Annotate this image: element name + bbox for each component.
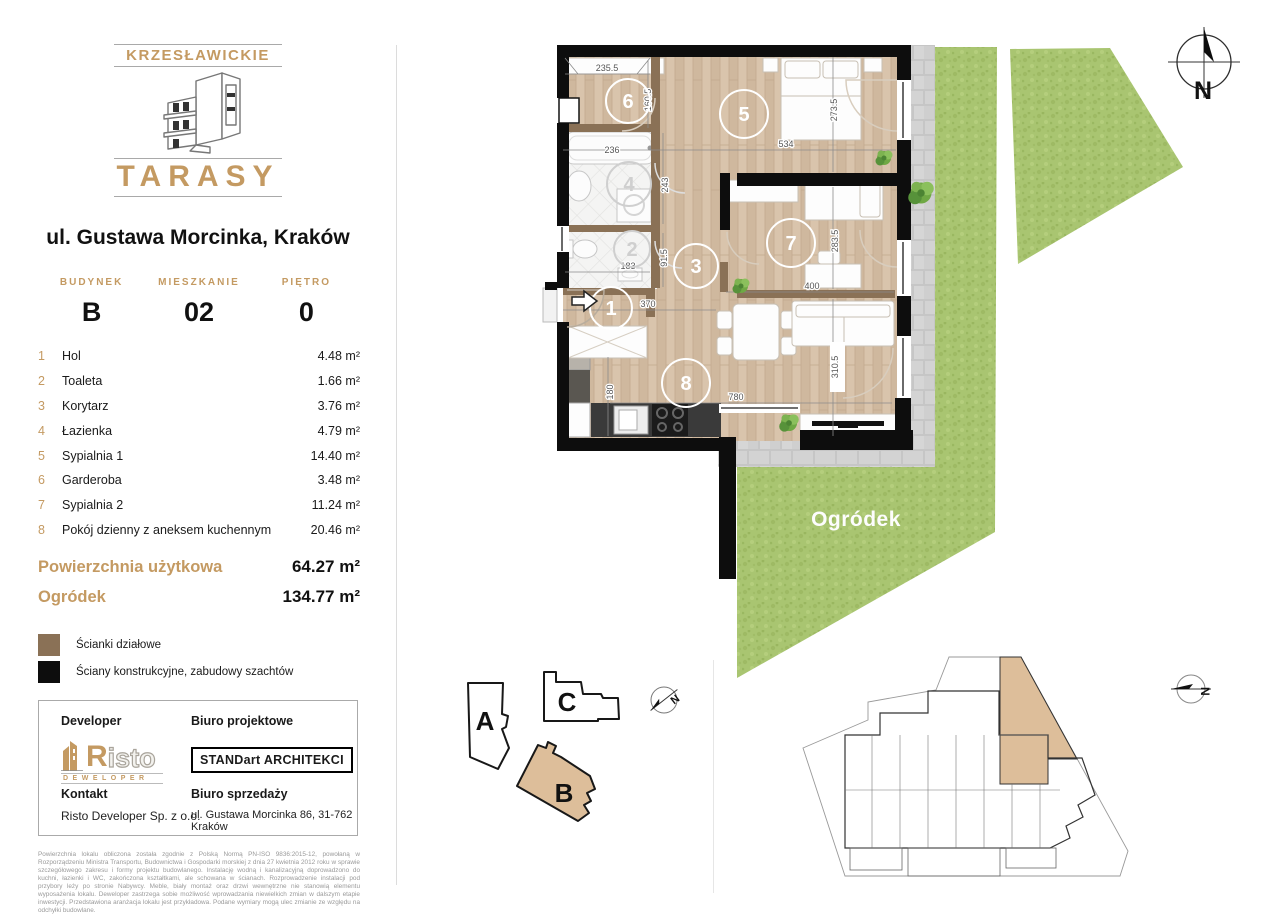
room-marker-2: 2 <box>626 239 637 261</box>
room-area: 11.24 m² <box>312 498 360 512</box>
flat-card-page: { "logo": { "top": "KRZESŁAWICKIE", "bot… <box>0 0 1280 906</box>
dim-370: 370 <box>640 299 655 309</box>
room-area: 3.76 m² <box>318 399 360 413</box>
dim-310-5: 310.5 <box>830 356 840 379</box>
street-address: ul. Gustawa Morcinka, Kraków <box>0 226 396 250</box>
room-number: 1 <box>38 349 56 363</box>
room-name: Korytarz <box>56 399 318 413</box>
usable-area-label: Powierzchnia użytkowa <box>38 558 292 577</box>
room-row: 2 Toaleta 1.66 m² <box>38 369 360 394</box>
risto-logo-isto: isto <box>108 745 156 771</box>
room-row: 3 Korytarz 3.76 m² <box>38 394 360 419</box>
room-row: 8 Pokój dzienny z aneksem kuchennym 20.4… <box>38 518 360 543</box>
partition-wall-label: Ścianki działowe <box>76 639 161 651</box>
room-area: 4.48 m² <box>318 349 360 363</box>
logo-rule-2 <box>114 66 282 67</box>
pietro-value: 0 <box>253 297 360 328</box>
pietro-label: PIĘTRO <box>253 277 360 288</box>
developer-label: Developer <box>61 714 121 728</box>
legal-disclaimer: Powierzchnia lokalu obliczona została zg… <box>38 851 360 915</box>
sales-office-value: ul. Gustawa Morcinka 86, 31-762 Kraków <box>191 809 357 833</box>
risto-building-icon <box>61 739 83 771</box>
room-row: 4 Łazienka 4.79 m² <box>38 418 360 443</box>
dim-400: 400 <box>804 281 819 291</box>
risto-logo-r: R <box>86 743 108 771</box>
dim-283-5: 283.5 <box>830 230 840 253</box>
room-name: Garderoba <box>56 473 318 487</box>
room-marker-5: 5 <box>738 104 749 126</box>
budynek-value: B <box>38 297 145 328</box>
room-number: 7 <box>38 498 56 512</box>
compass-site: N <box>648 686 685 720</box>
legend-structural-row: Ściany konstrukcyjne, zabudowy szachtów <box>38 661 378 683</box>
contact-label: Kontakt <box>61 787 108 801</box>
compass-overview: N <box>1171 675 1212 703</box>
room-name: Hol <box>56 349 318 363</box>
room-marker-6: 6 <box>622 91 633 113</box>
left-panel: KRZESŁAWICKIE TARASY u <box>0 0 400 906</box>
risto-logo: R isto DEWELOPER <box>61 737 163 784</box>
room-marker-8: 8 <box>680 373 691 395</box>
room-area: 20.46 m² <box>311 523 360 537</box>
brand-logo: KRZESŁAWICKIE TARASY <box>114 44 282 197</box>
compass-north-label: N <box>1194 77 1212 105</box>
dim-780: 780 <box>728 392 743 402</box>
dim-243: 243 <box>660 177 670 192</box>
dim-236: 236 <box>604 145 619 155</box>
dim-235-5: 235.5 <box>596 63 619 73</box>
room-area: 4.79 m² <box>318 424 360 438</box>
wall-legend: Ścianki działowe Ściany konstrukcyjne, z… <box>38 634 378 688</box>
compass-overview-north: N <box>1198 687 1212 696</box>
structural-wall-swatch <box>38 661 60 683</box>
floor-plan-canvas: 235.5 160.5 236 243 534 273.5 183 91.5 2… <box>400 0 1280 906</box>
room-area: 14.40 m² <box>311 449 360 463</box>
overview-building <box>845 691 1095 848</box>
room-number: 6 <box>38 473 56 487</box>
compass-site-north: N <box>669 693 683 707</box>
logo-building-icon <box>150 69 246 155</box>
dim-91-5: 91.5 <box>659 249 669 267</box>
room-list: 1 Hol 4.48 m² 2 Toaleta 1.66 m² 3 Koryta… <box>38 344 360 542</box>
unit-info-columns: BUDYNEK B MIESZKANIE 02 PIĘTRO 0 <box>38 277 360 328</box>
sales-office-label: Biuro sprzedaży <box>191 787 288 801</box>
logo-title-top: KRZESŁAWICKIE <box>114 47 282 64</box>
info-col-mieszkanie: MIESZKANIE 02 <box>145 277 252 328</box>
overview-garage <box>850 848 902 870</box>
overview-garage <box>1006 848 1056 868</box>
compass-needle <box>1204 28 1214 62</box>
room-number: 4 <box>38 424 56 438</box>
design-office-logo: STANDart ARCHITEKCI <box>191 747 353 773</box>
logo-rule-top <box>114 44 282 45</box>
compass-main: N <box>1168 27 1240 105</box>
room-marker-7: 7 <box>785 233 796 255</box>
side-green-parcel <box>1010 48 1183 264</box>
room-name: Toaleta <box>56 374 318 388</box>
garden-area-value: 134.77 m² <box>283 587 361 607</box>
site-plan: A C B N <box>468 672 685 821</box>
room-row: 6 Garderoba 3.48 m² <box>38 468 360 493</box>
info-col-pietro: PIĘTRO 0 <box>253 277 360 328</box>
partition-wall-swatch <box>38 634 60 656</box>
building-c-label: C <box>558 687 577 717</box>
dim-534: 534 <box>778 139 793 149</box>
garden-area-label: Ogródek <box>38 588 283 607</box>
room-number: 3 <box>38 399 56 413</box>
floor-overview: N <box>803 657 1212 876</box>
room-number: 5 <box>38 449 56 463</box>
budynek-label: BUDYNEK <box>38 277 145 288</box>
mieszkanie-value: 02 <box>145 297 252 328</box>
logo-title-bottom: TARASY <box>114 160 282 194</box>
logo-rule-3 <box>114 158 282 159</box>
building-a-label: A <box>476 706 495 736</box>
structural-wall-label: Ściany konstrukcyjne, zabudowy szachtów <box>76 666 293 678</box>
room-number: 8 <box>38 523 56 537</box>
legend-partition-row: Ścianki działowe <box>38 634 378 656</box>
room-area: 1.66 m² <box>318 374 360 388</box>
room-name: Sypialnia 2 <box>56 498 312 512</box>
developer-box: Developer R isto DEWELOPER Biuro projekt… <box>38 700 358 836</box>
room-row: 1 Hol 4.48 m² <box>38 344 360 369</box>
room-marker-4: 4 <box>623 174 635 196</box>
room-row: 5 Sypialnia 1 14.40 m² <box>38 443 360 468</box>
standart-architekci-logo: STANDart ARCHITEKCI <box>191 747 353 773</box>
building-c-outline <box>544 672 619 721</box>
usable-area-value: 64.27 m² <box>292 557 360 577</box>
total-garden-row: Ogródek 134.77 m² <box>38 587 360 617</box>
building-b-label: B <box>555 778 574 808</box>
risto-logo-subtitle: DEWELOPER <box>61 773 163 784</box>
room-row: 7 Sypialnia 2 11.24 m² <box>38 493 360 518</box>
total-usable-area-row: Powierzchnia użytkowa 64.27 m² <box>38 557 360 587</box>
room-area: 3.48 m² <box>318 473 360 487</box>
info-col-budynek: BUDYNEK B <box>38 277 145 328</box>
contact-value: Risto Developer Sp. z o.o. <box>61 809 200 823</box>
panel-divider <box>396 45 397 885</box>
mieszkanie-label: MIESZKANIE <box>145 277 252 288</box>
dim-273-5: 273.5 <box>829 99 839 122</box>
room-name: Sypialnia 1 <box>56 449 311 463</box>
dim-180: 180 <box>605 384 615 399</box>
design-office-label: Biuro projektowe <box>191 714 293 728</box>
room-number: 2 <box>38 374 56 388</box>
garden-label: Ogródek <box>811 508 901 531</box>
room-name: Łazienka <box>56 424 318 438</box>
room-marker-3: 3 <box>690 256 701 278</box>
overview-garage <box>908 848 1000 876</box>
logo-rule-bottom <box>114 196 282 197</box>
room-name: Pokój dzienny z aneksem kuchennym <box>56 523 311 537</box>
room-marker-1: 1 <box>605 298 616 320</box>
totals: Powierzchnia użytkowa 64.27 m² Ogródek 1… <box>38 557 360 617</box>
